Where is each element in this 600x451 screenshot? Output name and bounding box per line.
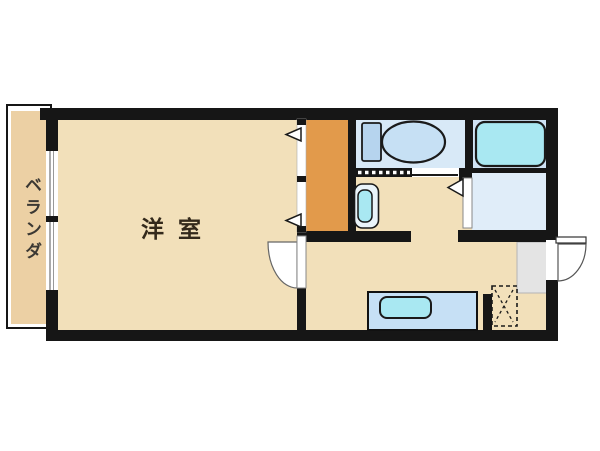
entrance-door-leaf xyxy=(556,237,586,243)
closet-floor xyxy=(306,119,348,231)
bathtub-icon xyxy=(476,122,545,166)
wall-under-closet xyxy=(297,231,411,242)
wall-bottom xyxy=(46,330,558,341)
track-tick-top xyxy=(297,119,306,125)
kitchen-sink-icon xyxy=(380,297,431,318)
kitchen-counter xyxy=(368,292,477,330)
balcony-label: ベランダ xyxy=(19,176,44,264)
western-room-label: 洋室 xyxy=(141,210,215,244)
washbasin-bowl xyxy=(358,190,372,222)
entry-door-swing xyxy=(558,244,586,281)
wall-left-upper xyxy=(46,108,58,146)
wall-bath-washroom-divider xyxy=(465,168,548,173)
wall-right-lower xyxy=(546,280,558,341)
window-tick-top xyxy=(46,146,58,151)
wall-washroom-bottom xyxy=(458,230,550,242)
wall-right-upper xyxy=(546,108,558,240)
wall-top xyxy=(40,108,558,120)
washroom-door-leaf xyxy=(463,178,472,228)
floor-plan-drawing xyxy=(0,0,600,451)
balcony-window xyxy=(46,146,58,296)
washroom-floor xyxy=(472,173,548,230)
toilet-icon xyxy=(362,122,445,163)
entrance-door-gap xyxy=(546,240,558,280)
entrance-door xyxy=(546,237,586,281)
wall-left-lower xyxy=(46,296,58,341)
toilet-bowl xyxy=(382,122,445,163)
window-tick-bottom xyxy=(46,290,58,296)
toilet-tank xyxy=(362,123,381,161)
room-door-leaf xyxy=(297,236,306,288)
entry-floor xyxy=(517,242,547,293)
washbasin-icon xyxy=(355,184,379,228)
toilet-folding-door-bar xyxy=(356,168,412,177)
window-tick-middle xyxy=(46,216,58,222)
track-tick-middle xyxy=(297,176,306,182)
wall-kitchen-stub xyxy=(483,294,492,330)
floor-plan: 洋室 ベランダ xyxy=(0,0,600,451)
wall-below-room-door xyxy=(297,288,306,330)
wall-toilet-bath xyxy=(465,119,473,173)
